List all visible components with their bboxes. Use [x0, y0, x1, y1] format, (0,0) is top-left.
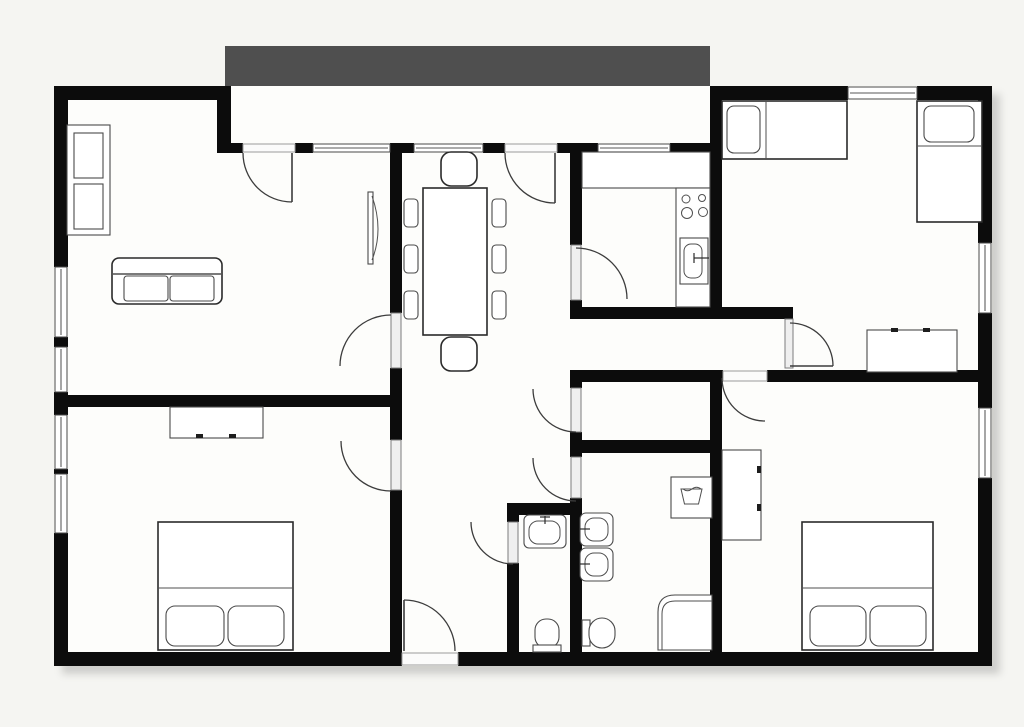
window — [55, 474, 67, 533]
window — [55, 267, 67, 337]
pillow — [228, 606, 284, 646]
pillow — [166, 606, 224, 646]
sink — [524, 515, 566, 548]
wall-kitchen-west — [570, 143, 582, 245]
window — [414, 144, 483, 152]
wardrobe — [722, 450, 761, 540]
wall-corridor-south — [572, 370, 718, 382]
window — [313, 144, 390, 152]
floor-plan: Balkon / Balcony — [0, 0, 1024, 727]
wall-living-hall — [390, 143, 402, 313]
wall-hall-east — [570, 370, 582, 388]
chair — [492, 199, 506, 227]
wall-living-bedroom — [68, 395, 390, 407]
pillow — [924, 106, 974, 142]
wall-left — [54, 86, 68, 267]
single-bed — [917, 101, 982, 222]
wall-under-balcony — [483, 143, 505, 153]
wall-left-mullion — [54, 337, 68, 347]
floor-plan-canvas: Balkon / Balcony — [0, 0, 1024, 727]
double-bed — [158, 522, 293, 650]
wall-living-hall — [390, 368, 402, 440]
sink — [580, 548, 613, 581]
wall-hall-east — [570, 432, 582, 457]
chair — [404, 291, 418, 319]
wall-kitchen-east — [710, 100, 722, 318]
chair — [404, 245, 418, 273]
chair — [441, 152, 477, 186]
chair — [441, 337, 477, 371]
toilet — [533, 619, 561, 652]
wall-under-balcony — [295, 143, 313, 153]
chair — [492, 245, 506, 273]
wall-top-left — [54, 86, 231, 100]
window — [55, 347, 67, 392]
pillow — [810, 606, 866, 646]
window — [979, 408, 991, 478]
window — [55, 415, 67, 469]
wall-wc-north — [507, 503, 570, 515]
wall-right — [978, 478, 992, 666]
pillow — [727, 106, 760, 153]
dresser — [867, 328, 957, 372]
wall-under-balcony — [231, 143, 243, 153]
window — [848, 87, 917, 99]
double-bed — [802, 522, 933, 650]
wall-wc-west — [507, 515, 519, 522]
wall-left-mullion — [54, 469, 68, 474]
wall-bottom-right — [458, 652, 992, 666]
wall-wc-west — [507, 563, 519, 652]
wall-balcony-jog-left — [217, 100, 231, 153]
dresser — [170, 407, 263, 438]
dining-table — [423, 188, 487, 335]
window — [598, 144, 670, 152]
corner-shower — [658, 595, 712, 650]
pillow — [870, 606, 926, 646]
window — [979, 243, 991, 313]
wall-right — [978, 313, 992, 408]
washing-machine — [671, 477, 712, 518]
toilet — [582, 618, 615, 648]
single-bed — [722, 101, 847, 159]
kitchen-counter — [582, 152, 710, 188]
sofa — [112, 258, 222, 304]
door-jamb — [767, 370, 772, 382]
wall-storage-south — [582, 440, 710, 453]
wall-left — [54, 533, 68, 666]
wall-kitchen-south — [570, 307, 793, 319]
wall-left — [54, 392, 68, 415]
wall-bedroom-hall — [390, 490, 402, 652]
chair — [492, 291, 506, 319]
kitchen-sink — [680, 238, 709, 284]
chair — [404, 199, 418, 227]
wall-bottom-left — [54, 652, 402, 666]
wall-top-right — [710, 86, 848, 100]
sink — [580, 513, 613, 546]
wardrobe — [67, 125, 110, 235]
